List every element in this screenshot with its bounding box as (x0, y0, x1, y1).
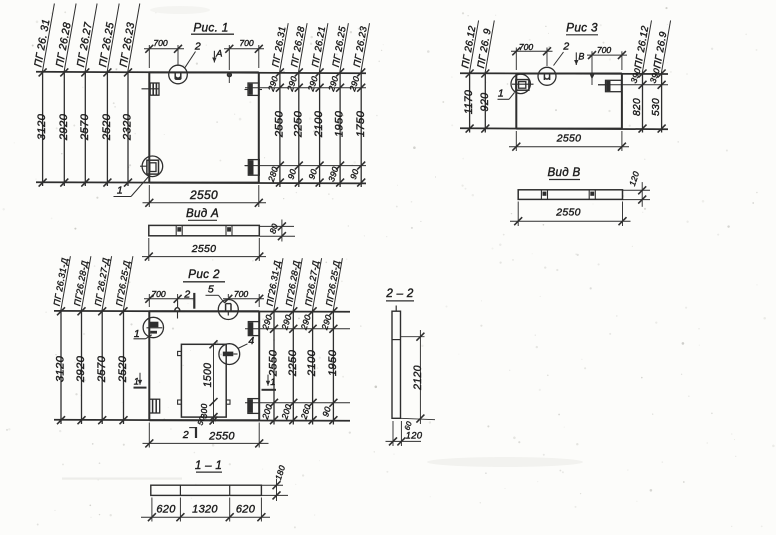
svg-text:Рис 3: Рис 3 (566, 21, 598, 35)
svg-text:2: 2 (194, 41, 201, 53)
svg-text:1320: 1320 (192, 504, 218, 516)
svg-text:А: А (215, 49, 223, 60)
svg-text:2570: 2570 (79, 113, 91, 141)
svg-text:4: 4 (248, 335, 254, 347)
svg-text:120: 120 (406, 431, 423, 442)
svg-text:Рис. 1: Рис. 1 (193, 21, 228, 35)
svg-text:1: 1 (270, 377, 276, 388)
svg-text:2570: 2570 (96, 355, 108, 383)
svg-text:820: 820 (632, 98, 643, 116)
svg-text:2250: 2250 (287, 349, 299, 377)
svg-text:1750: 1750 (355, 110, 367, 137)
svg-text:2 – 2: 2 – 2 (385, 287, 414, 300)
svg-text:700: 700 (151, 289, 166, 299)
svg-text:1 – 1: 1 – 1 (195, 459, 222, 472)
svg-text:700: 700 (239, 38, 254, 48)
svg-text:620: 620 (156, 504, 176, 516)
svg-text:1: 1 (117, 185, 123, 197)
svg-text:920: 920 (479, 93, 491, 112)
svg-text:2100: 2100 (313, 110, 325, 138)
svg-text:2: 2 (562, 41, 569, 53)
svg-text:Вид А: Вид А (186, 207, 219, 220)
svg-text:2120: 2120 (412, 365, 424, 391)
svg-text:2550: 2550 (268, 349, 280, 377)
svg-text:2550: 2550 (556, 132, 582, 144)
svg-text:Вид В: Вид В (547, 166, 580, 179)
svg-text:2100: 2100 (306, 349, 318, 377)
svg-text:2550: 2550 (555, 207, 581, 219)
svg-text:3120: 3120 (55, 355, 67, 382)
svg-text:700: 700 (597, 45, 612, 55)
svg-text:Рис 2: Рис 2 (188, 267, 220, 281)
svg-text:1950: 1950 (334, 110, 346, 137)
svg-text:2320: 2320 (122, 113, 134, 141)
svg-text:2250: 2250 (292, 110, 304, 138)
svg-text:620: 620 (236, 504, 256, 516)
svg-text:1: 1 (498, 88, 504, 100)
svg-text:2920: 2920 (58, 113, 70, 141)
svg-text:700: 700 (519, 42, 534, 52)
svg-text:2520: 2520 (101, 113, 113, 141)
svg-text:2920: 2920 (75, 355, 87, 383)
svg-text:2550: 2550 (191, 243, 217, 255)
svg-text:5: 5 (208, 284, 214, 296)
svg-text:2: 2 (182, 429, 189, 441)
svg-text:700: 700 (234, 289, 249, 299)
svg-text:1: 1 (134, 377, 140, 388)
svg-text:1170: 1170 (463, 90, 475, 114)
svg-text:В: В (578, 52, 584, 62)
svg-text:3120: 3120 (36, 113, 48, 140)
svg-text:2550: 2550 (208, 431, 235, 443)
svg-text:2: 2 (183, 289, 190, 301)
svg-text:530: 530 (651, 98, 662, 116)
svg-text:2550: 2550 (274, 110, 286, 138)
svg-text:1500: 1500 (202, 363, 214, 388)
svg-text:1950: 1950 (327, 349, 339, 376)
svg-text:700: 700 (153, 38, 168, 48)
svg-text:2520: 2520 (117, 355, 129, 383)
svg-text:2550: 2550 (189, 188, 218, 202)
